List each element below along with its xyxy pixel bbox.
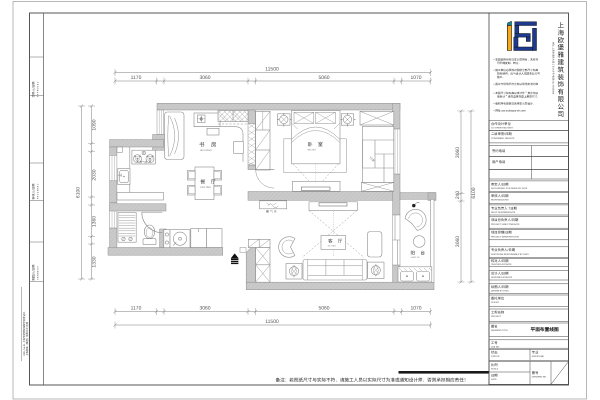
svg-text:11500: 11500 — [265, 319, 279, 325]
svg-text:2030: 2030 — [92, 169, 98, 180]
svg-text:校对人/日期: 校对人/日期 — [491, 259, 509, 263]
svg-text:YANG TAI: YANG TAI — [411, 256, 420, 259]
svg-text:审核人/日期: 审核人/日期 — [491, 194, 509, 198]
svg-text:上海装饰（集团）有限公司 监制: 上海装饰（集团）有限公司 监制 — [25, 321, 29, 356]
svg-text:制图人/日期: 制图人/日期 — [32, 265, 36, 281]
svg-text:专业负责人 7日期: 专业负责人 7日期 — [491, 206, 518, 210]
svg-text:SHOP DESIGNER/DATE: SHOP DESIGNER/DATE — [491, 211, 516, 214]
svg-text:绘图人/日期: 绘图人/日期 — [491, 285, 509, 289]
svg-text:合作设计单位: 合作设计单位 — [491, 122, 511, 126]
svg-text:1070: 1070 — [410, 75, 421, 81]
svg-text:▪ 网址 ww.oubaoya-sh.com: ▪ 网址 ww.oubaoya-sh.com — [494, 109, 527, 113]
svg-text:审定人/日期: 审定人/日期 — [491, 182, 509, 186]
svg-text:用户电话: 用户电话 — [492, 160, 506, 164]
svg-text:图号: 图号 — [532, 371, 539, 375]
svg-text:11500: 11500 — [265, 67, 279, 73]
svg-text:REVIEWED/DATE: REVIEWED/DATE — [491, 199, 509, 202]
svg-text:委托单位: 委托单位 — [491, 297, 505, 301]
svg-text:书 房: 书 房 — [199, 142, 219, 149]
svg-text:如有疑问，应与设计人员联系后方可: 如有疑问，应与设计人员联系后方可 — [497, 72, 540, 76]
svg-text:1070: 1070 — [410, 306, 421, 312]
svg-text:工号: 工号 — [491, 341, 498, 345]
svg-text:1991-No.01 上海市建筑装饰装修资质证书: 1991-No.01 上海市建筑装饰装修资质证书 — [22, 311, 26, 356]
svg-text:地址:上海市浦东大道２８８８号 电话:021-5835888: 地址:上海市浦东大道２８８８号 电话:021-5835888 — [552, 42, 555, 95]
svg-text:可不得复制．转让．: 可不得复制．转让． — [497, 61, 521, 65]
svg-text:KE TING: KE TING — [328, 244, 336, 247]
svg-text:餐 厅: 餐 厅 — [200, 179, 217, 185]
svg-text:DRAWING TITLE: DRAWING TITLE — [491, 329, 509, 332]
svg-text:日期: 日期 — [491, 374, 498, 378]
svg-text:6100: 6100 — [471, 187, 477, 198]
svg-text:项目总负责人/日期: 项目总负责人/日期 — [491, 218, 519, 222]
svg-text:240: 240 — [455, 191, 461, 200]
svg-text:SCALE: SCALE — [491, 367, 499, 370]
svg-text:图名: 图名 — [491, 325, 498, 329]
svg-text:比例: 比例 — [491, 363, 498, 367]
svg-text:毫米计＂请勿直接在图上量取尺寸．: 毫米计＂请勿直接在图上量取尺寸． — [497, 95, 540, 99]
svg-text:PROJECT MANAGER DATE: PROJECT MANAGER DATE — [491, 235, 520, 238]
svg-text:DESIGNED BY/DATE: DESIGNED BY/DATE — [491, 276, 513, 279]
svg-text:状态: 状态 — [491, 351, 498, 355]
svg-text:▪ 图中与现场不符之处以现场实测为准: ▪ 图中与现场不符之处以现场实测为准 — [494, 82, 539, 86]
svg-text:5060: 5060 — [318, 75, 329, 81]
svg-text:签约电话: 签约电话 — [492, 149, 506, 153]
svg-text:领导人/日期: 领导人/日期 — [32, 82, 36, 98]
svg-text:3060: 3060 — [199, 306, 210, 312]
svg-text:ＲＥＶＩＥＷＥＤ: ＲＥＶＩＥＷＥＤ — [37, 183, 40, 199]
svg-text:3060: 3060 — [455, 236, 461, 247]
svg-text:CONFIRMED ON/DATE: CONFIRMED ON/DATE — [491, 137, 515, 140]
svg-text:5060: 5060 — [318, 306, 329, 312]
svg-text:暖气片: 暖气片 — [266, 210, 278, 214]
svg-text:1090: 1090 — [92, 119, 98, 130]
svg-text:审核人/日期: 审核人/日期 — [32, 184, 36, 200]
svg-text:备注：若图纸尺寸与实际不符．请施工人员以实际尺寸为准或通知设: 备注：若图纸尺寸与实际不符．请施工人员以实际尺寸为准或通知设计师．否则承担相应责… — [276, 378, 469, 383]
svg-text:施工．: 施工． — [497, 75, 505, 79]
svg-text:DRAWING NO: DRAWING NO — [532, 376, 547, 379]
svg-text:DISCIPLINE: DISCIPLINE — [532, 355, 545, 358]
svg-text:3060: 3060 — [455, 147, 461, 158]
svg-text:▪ 施工单位必须核对图纸全部尺寸标高: ▪ 施工单位必须核对图纸全部尺寸标高 — [494, 68, 539, 72]
svg-text:▪ 版权所有感谢您选用本公司设计．: ▪ 版权所有感谢您选用本公司设计． — [494, 102, 536, 106]
svg-text:JOB NO: JOB NO — [491, 345, 499, 348]
svg-text:CAN TING: CAN TING — [200, 186, 211, 189]
svg-text:3060: 3060 — [199, 75, 210, 81]
svg-text:STATUS: STATUS — [491, 355, 500, 358]
svg-text:客 厅: 客 厅 — [328, 239, 344, 244]
svg-text:工程名称: 工程名称 — [491, 311, 505, 315]
svg-text:ＡＰＰＲＯＶＥＤ: ＡＰＰＲＯＶＥＤ — [37, 81, 40, 97]
svg-text:二级审查/日期: 二级审查/日期 — [491, 132, 512, 136]
svg-text:1330: 1330 — [92, 256, 98, 267]
svg-text:SHU FANG: SHU FANG — [200, 149, 212, 152]
svg-text:阳 台: 阳 台 — [411, 251, 427, 256]
svg-text:▪ 本图尺寸除标高以米计外＂其余均以: ▪ 本图尺寸除标高以米计外＂其余均以 — [494, 91, 539, 95]
svg-text:▪ 本图纸所有权归本公司所有，未经许: ▪ 本图纸所有权归本公司所有，未经许 — [494, 58, 539, 62]
svg-text:上海欧堡雅建筑装饰有限公司: 上海欧堡雅建筑装饰有限公司 — [558, 22, 565, 119]
svg-text:项目经理/日期: 项目经理/日期 — [491, 231, 512, 235]
svg-text:CLIENT: CLIENT — [491, 301, 499, 304]
svg-text:PROJECT DIRECTOR/DATE: PROJECT DIRECTOR/DATE — [491, 223, 520, 226]
svg-text:WO SHI: WO SHI — [308, 149, 316, 152]
svg-text:CO-OPERATED WITH: CO-OPERATED WITH — [491, 126, 513, 129]
svg-text:平面布置线图: 平面布置线图 — [531, 326, 559, 332]
svg-text:DRAWN BY DATE: DRAWN BY DATE — [491, 289, 509, 292]
svg-text:6100: 6100 — [76, 187, 82, 198]
svg-text:燃气灶: 燃气灶 — [140, 161, 148, 165]
svg-text:卧 室: 卧 室 — [308, 142, 325, 148]
svg-text:AUTHORIZED FOR ISSUE BY DATE: AUTHORIZED FOR ISSUE BY DATE — [491, 187, 528, 190]
svg-text:PROJECT: PROJECT — [491, 315, 502, 318]
svg-text:1360: 1360 — [92, 216, 98, 227]
svg-text:专业: 专业 — [532, 351, 539, 355]
svg-text:1170: 1170 — [131, 75, 142, 81]
svg-text:1170: 1170 — [131, 306, 142, 312]
svg-text:ＤＲＡＷＮ ＢＹ: ＤＲＡＷＮ ＢＹ — [37, 266, 40, 281]
svg-text:DATE: DATE — [491, 378, 497, 381]
svg-text:CHECKED BY/DATE: CHECKED BY/DATE — [491, 263, 512, 266]
svg-text:专业负责人/日期: 专业负责人/日期 — [491, 248, 516, 252]
svg-text:DISCIPLINE RESPONSIBLE BY DATE: DISCIPLINE RESPONSIBLE BY DATE — [491, 253, 530, 256]
svg-text:设计人/日期: 设计人/日期 — [491, 272, 509, 276]
